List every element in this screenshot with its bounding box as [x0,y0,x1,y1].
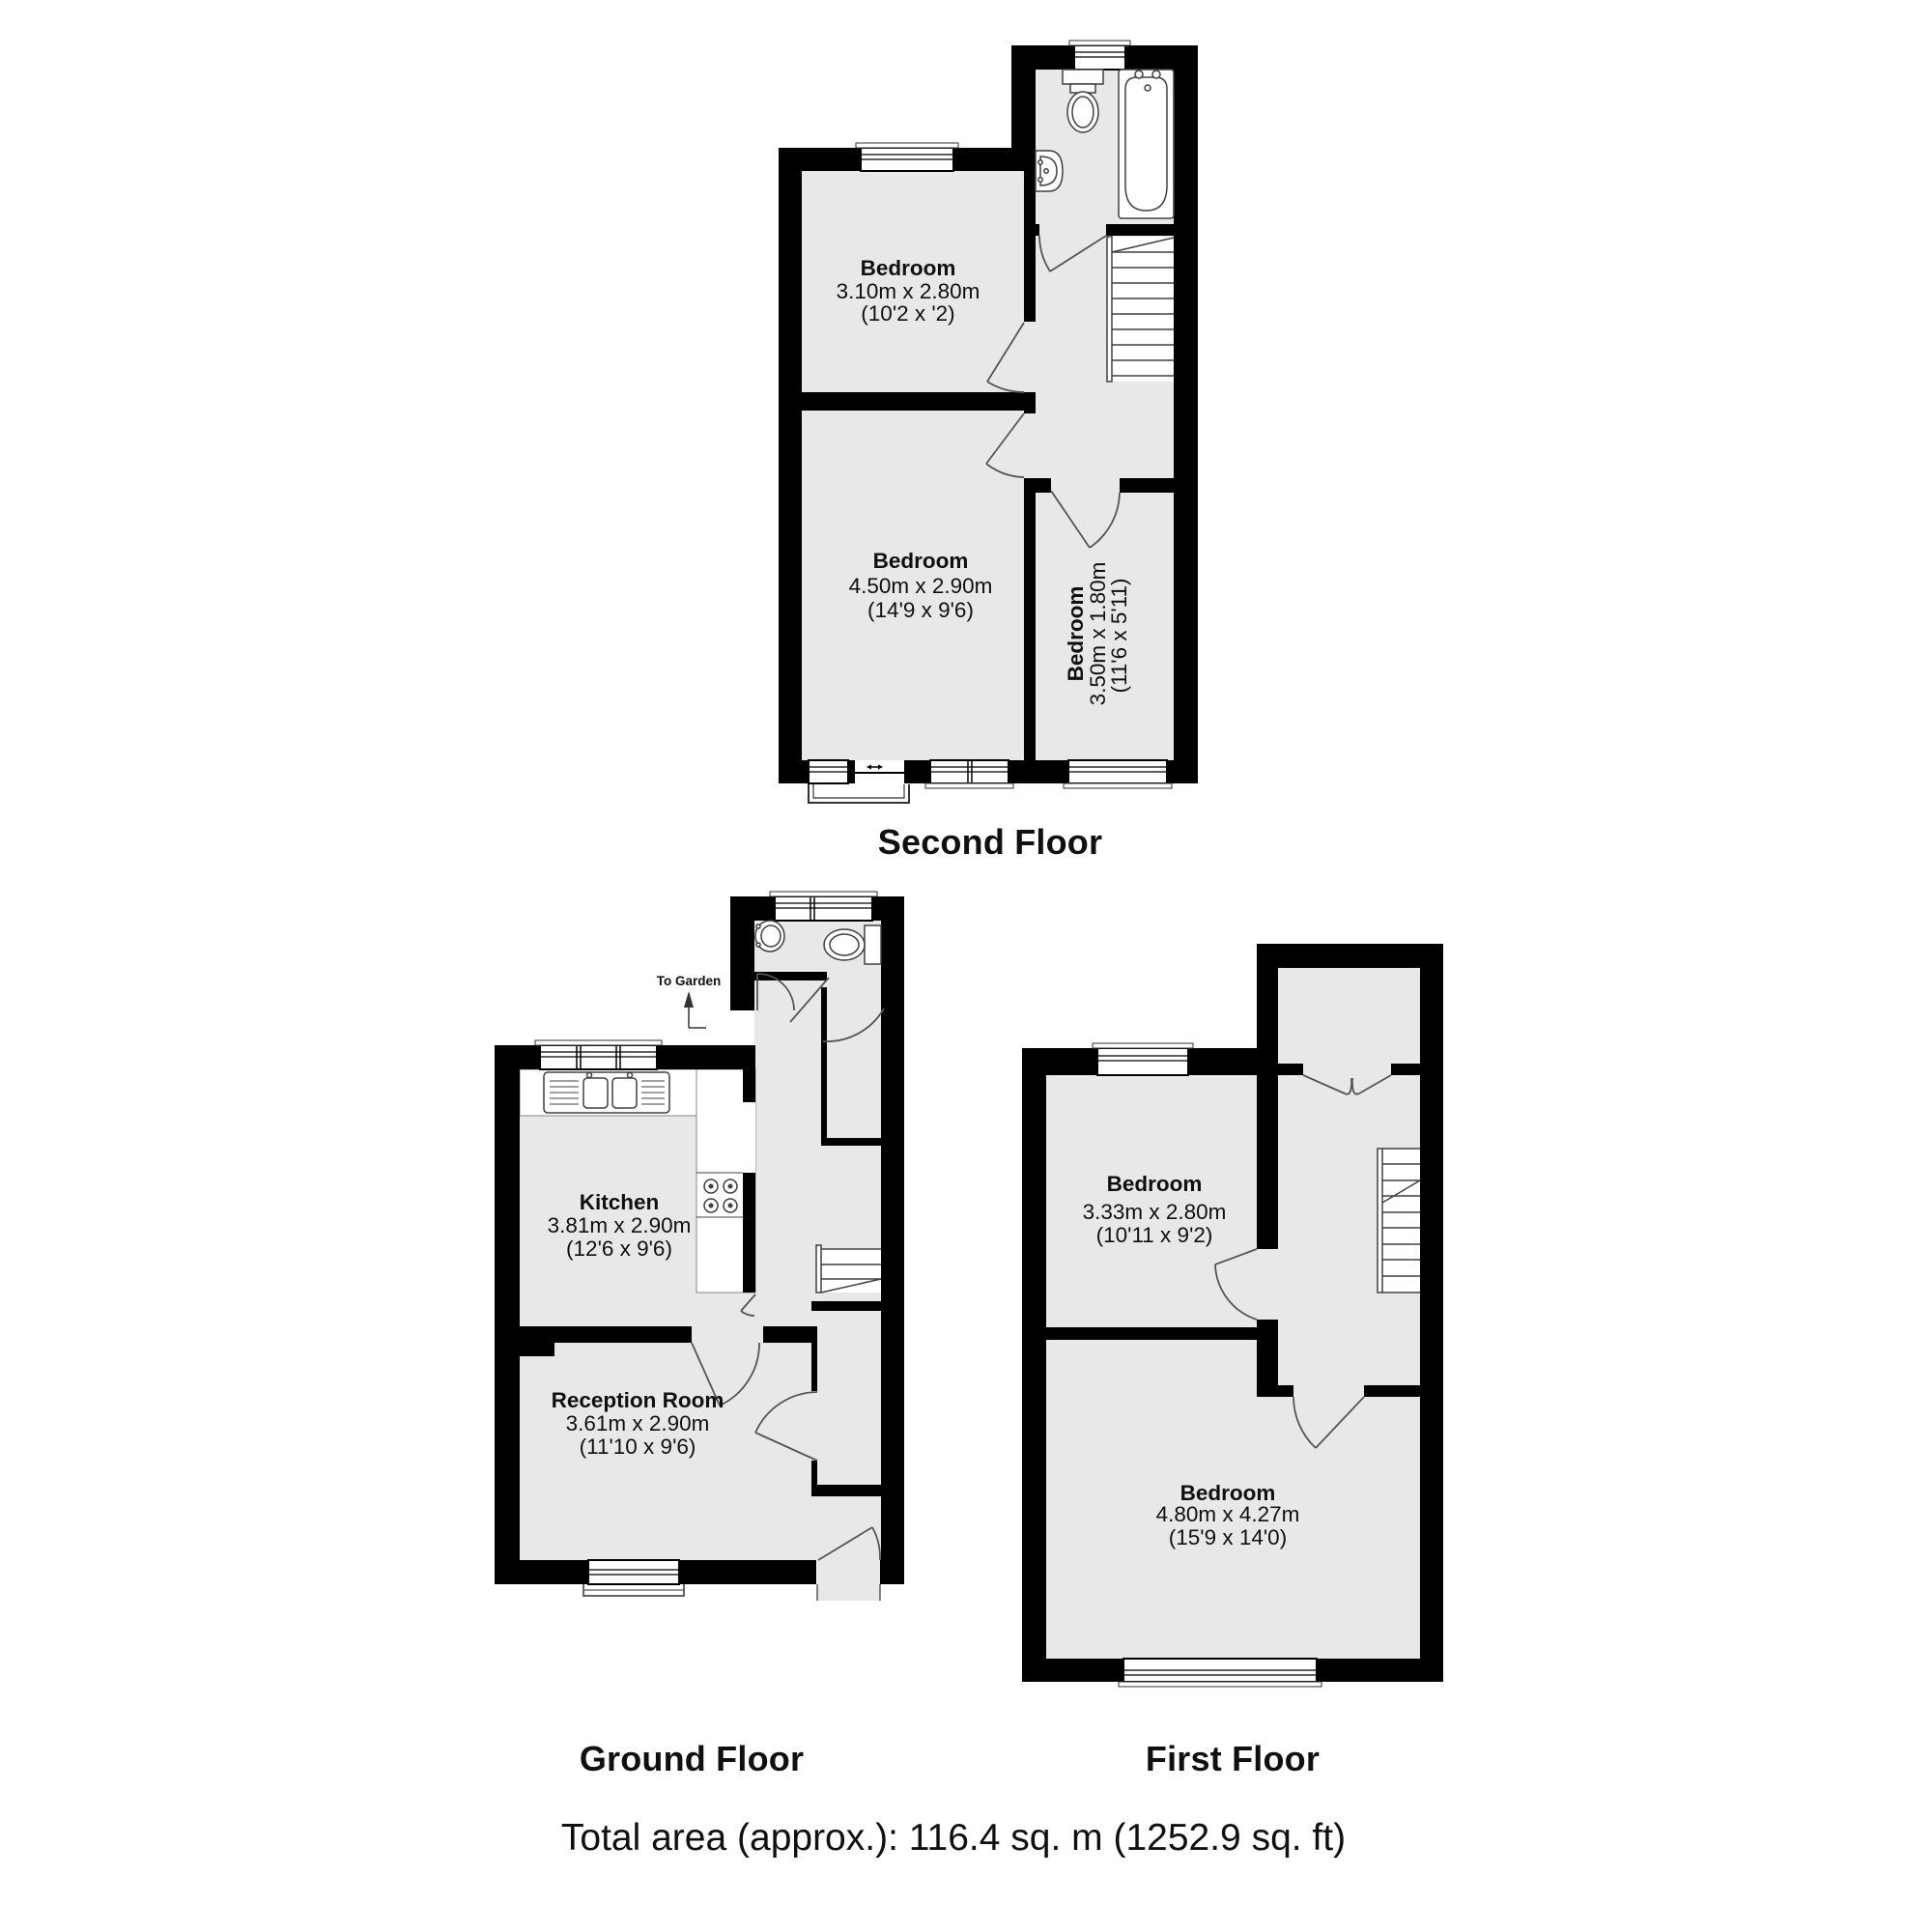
svg-text:Bedroom: Bedroom [873,549,969,573]
svg-text:Total area (approx.): 116.4 sq: Total area (approx.): 116.4 sq. m (1252.… [561,1817,1346,1859]
svg-text:4.80m x 4.27m: 4.80m x 4.27m [1156,1502,1300,1526]
svg-text:(10'11 x 9'2): (10'11 x 9'2) [1096,1223,1213,1247]
svg-text:3.10m x 2.80m: 3.10m x 2.80m [837,279,980,303]
svg-text:Kitchen: Kitchen [580,1190,660,1214]
svg-text:(11'10 x 9'6): (11'10 x 9'6) [580,1435,696,1459]
svg-text:4.50m x 2.90m: 4.50m x 2.90m [849,574,993,598]
svg-text:(10'2 x '2): (10'2 x '2) [861,301,954,326]
svg-text:Reception Room: Reception Room [552,1388,724,1412]
svg-text:3.81m x 2.90m: 3.81m x 2.90m [548,1213,692,1237]
svg-text:Bedroom: Bedroom [1064,586,1088,682]
svg-text:3.61m x 2.90m: 3.61m x 2.90m [566,1411,710,1435]
svg-text:(15'9 x 14'0): (15'9 x 14'0) [1169,1525,1287,1549]
svg-text:To Garden: To Garden [657,974,722,988]
svg-text:Bedroom: Bedroom [861,256,956,280]
svg-text:Ground Floor: Ground Floor [580,1739,804,1778]
svg-text:(14'9 x 9'6): (14'9 x 9'6) [867,598,974,622]
svg-text:(11'6 x 5'11): (11'6 x 5'11) [1107,578,1131,693]
svg-text:Bedroom: Bedroom [1107,1172,1203,1196]
svg-text:3.33m x 2.80m: 3.33m x 2.80m [1083,1200,1227,1224]
svg-text:First Floor: First Floor [1146,1739,1320,1778]
svg-text:Second Floor: Second Floor [878,822,1102,862]
svg-text:(12'6 x 9'6): (12'6 x 9'6) [566,1236,672,1261]
